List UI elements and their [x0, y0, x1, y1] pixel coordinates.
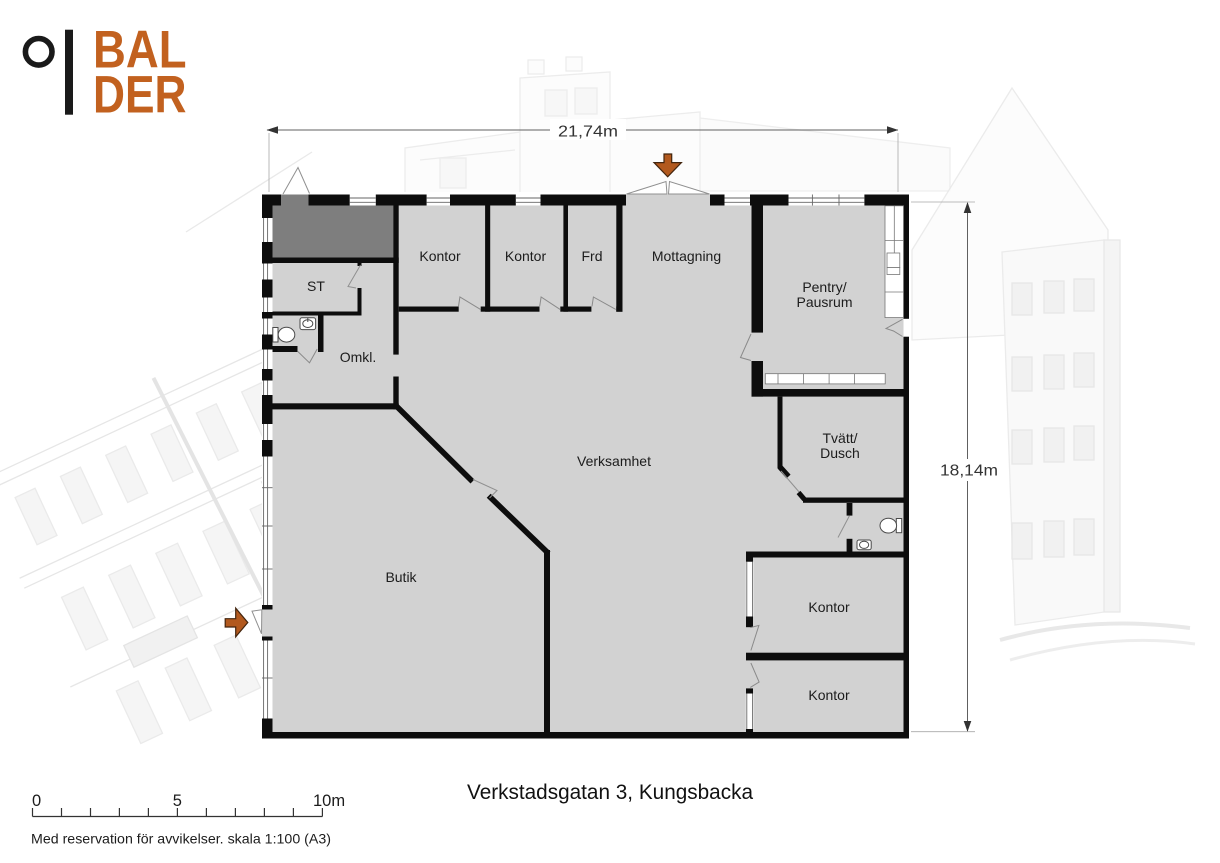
- svg-text:21,74m: 21,74m: [558, 124, 618, 141]
- svg-text:Frd: Frd: [582, 248, 603, 264]
- svg-text:Pausrum: Pausrum: [796, 294, 852, 310]
- svg-text:10m: 10m: [313, 792, 345, 810]
- svg-text:Omkl.: Omkl.: [340, 349, 377, 365]
- svg-text:0: 0: [32, 792, 41, 810]
- svg-text:Kontor: Kontor: [419, 248, 461, 264]
- svg-text:Verksamhet: Verksamhet: [577, 453, 651, 469]
- svg-text:Med reservation för avvikelser: Med reservation för avvikelser. skala 1:…: [31, 832, 331, 847]
- svg-text:Kontor: Kontor: [505, 248, 547, 264]
- svg-text:Kontor: Kontor: [808, 599, 850, 615]
- svg-text:Verkstadsgatan 3, Kungsbacka: Verkstadsgatan 3, Kungsbacka: [467, 780, 753, 804]
- svg-text:Mottagning: Mottagning: [652, 248, 721, 264]
- svg-text:Tvätt/: Tvätt/: [822, 430, 857, 446]
- svg-text:DER: DER: [93, 65, 187, 124]
- svg-text:Butik: Butik: [385, 569, 417, 585]
- svg-text:Dusch: Dusch: [820, 445, 860, 461]
- svg-text:Pentry/: Pentry/: [802, 279, 846, 295]
- svg-text:5: 5: [173, 792, 182, 810]
- svg-text:Kontor: Kontor: [808, 687, 850, 703]
- svg-text:18,14m: 18,14m: [940, 463, 998, 480]
- svg-text:ST: ST: [307, 278, 325, 294]
